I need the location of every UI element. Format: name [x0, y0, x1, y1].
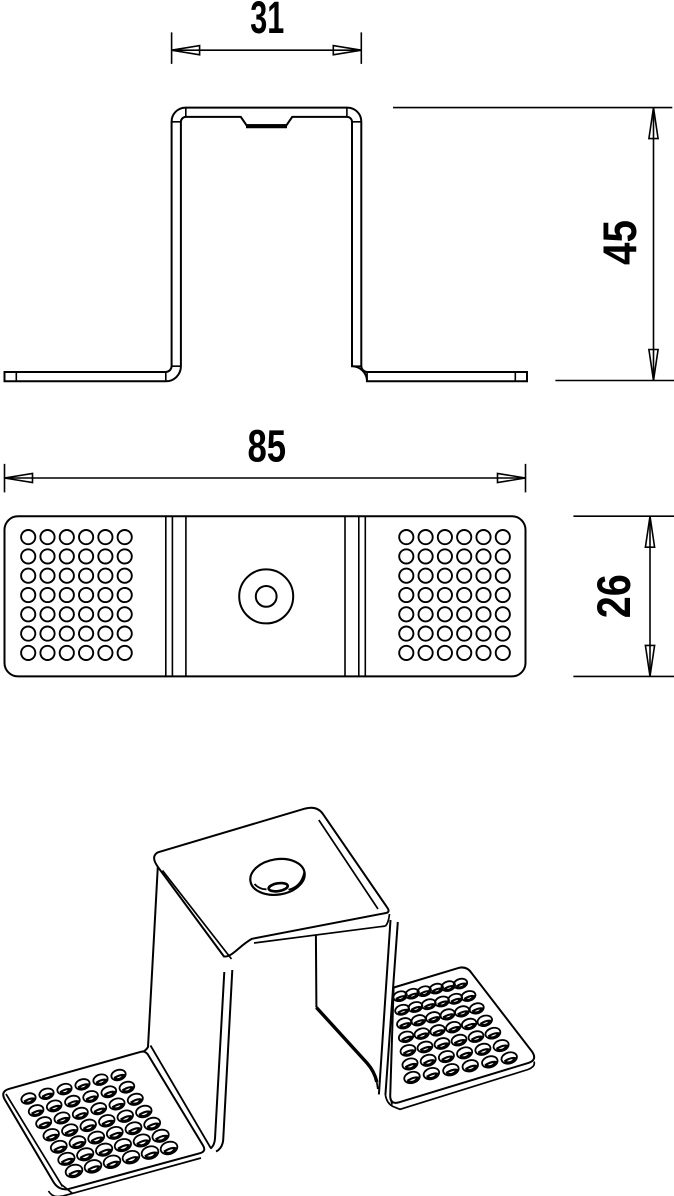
svg-text:26: 26: [587, 574, 640, 618]
svg-text:31: 31: [250, 0, 284, 43]
svg-text:45: 45: [593, 220, 646, 265]
svg-text:85: 85: [248, 420, 287, 471]
